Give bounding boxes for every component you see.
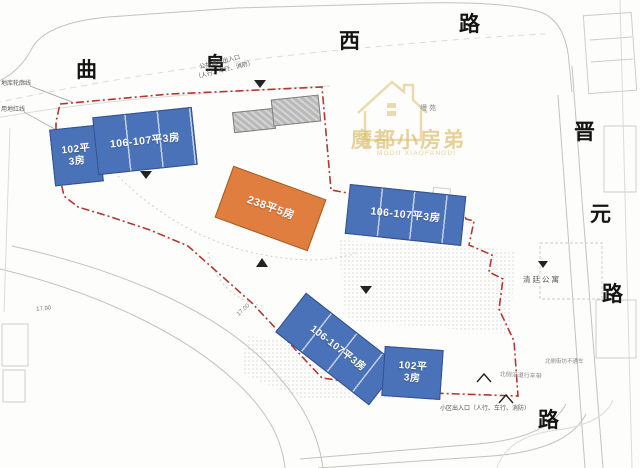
red-line-label: 用地红线 [1, 104, 25, 113]
building-label: 3房 [403, 372, 420, 385]
street-label-lu-top: 路 [459, 8, 480, 38]
street-label-xi: 西 [339, 25, 360, 55]
north-side-note-1: 北侧街坊不通车 [545, 357, 584, 365]
entrance-note-bottom: 小区出入口（人行、车行、消防） [440, 403, 530, 412]
street-label-qu: 曲 [76, 54, 97, 84]
building-label: 3房 [68, 155, 86, 168]
garage-outline-label: 地库轮廓线 [1, 78, 31, 87]
street-label-lu-bottom: 路 [538, 404, 559, 434]
building-label: 238平5房 [245, 194, 296, 223]
watermark-subtitle: MODU XIAOFANGDI [377, 150, 456, 157]
existing-building [271, 95, 322, 127]
street-label-lu-right: 路 [602, 278, 623, 308]
building-label: 102平 [398, 360, 427, 374]
leader-lines [24, 86, 72, 132]
street-label-jin: 晋 [574, 116, 595, 146]
site-plan: 102平 3房 106-107平3房 238平5房 106-107平3房 106… [0, 0, 640, 468]
project-name-label: 缦苑 [420, 103, 438, 113]
building-label: 106-107平3房 [109, 131, 180, 151]
building-102sqm-3room: 102平 3房 [381, 346, 443, 400]
neighbor-apartment-label: 清廷公寓 [523, 274, 561, 285]
building-106-107sqm-3room: 106-107平3房 [92, 107, 198, 175]
street-label-yuan: 元 [590, 198, 611, 228]
building-label: 106-107平3房 [370, 205, 441, 225]
existing-building [232, 108, 276, 133]
